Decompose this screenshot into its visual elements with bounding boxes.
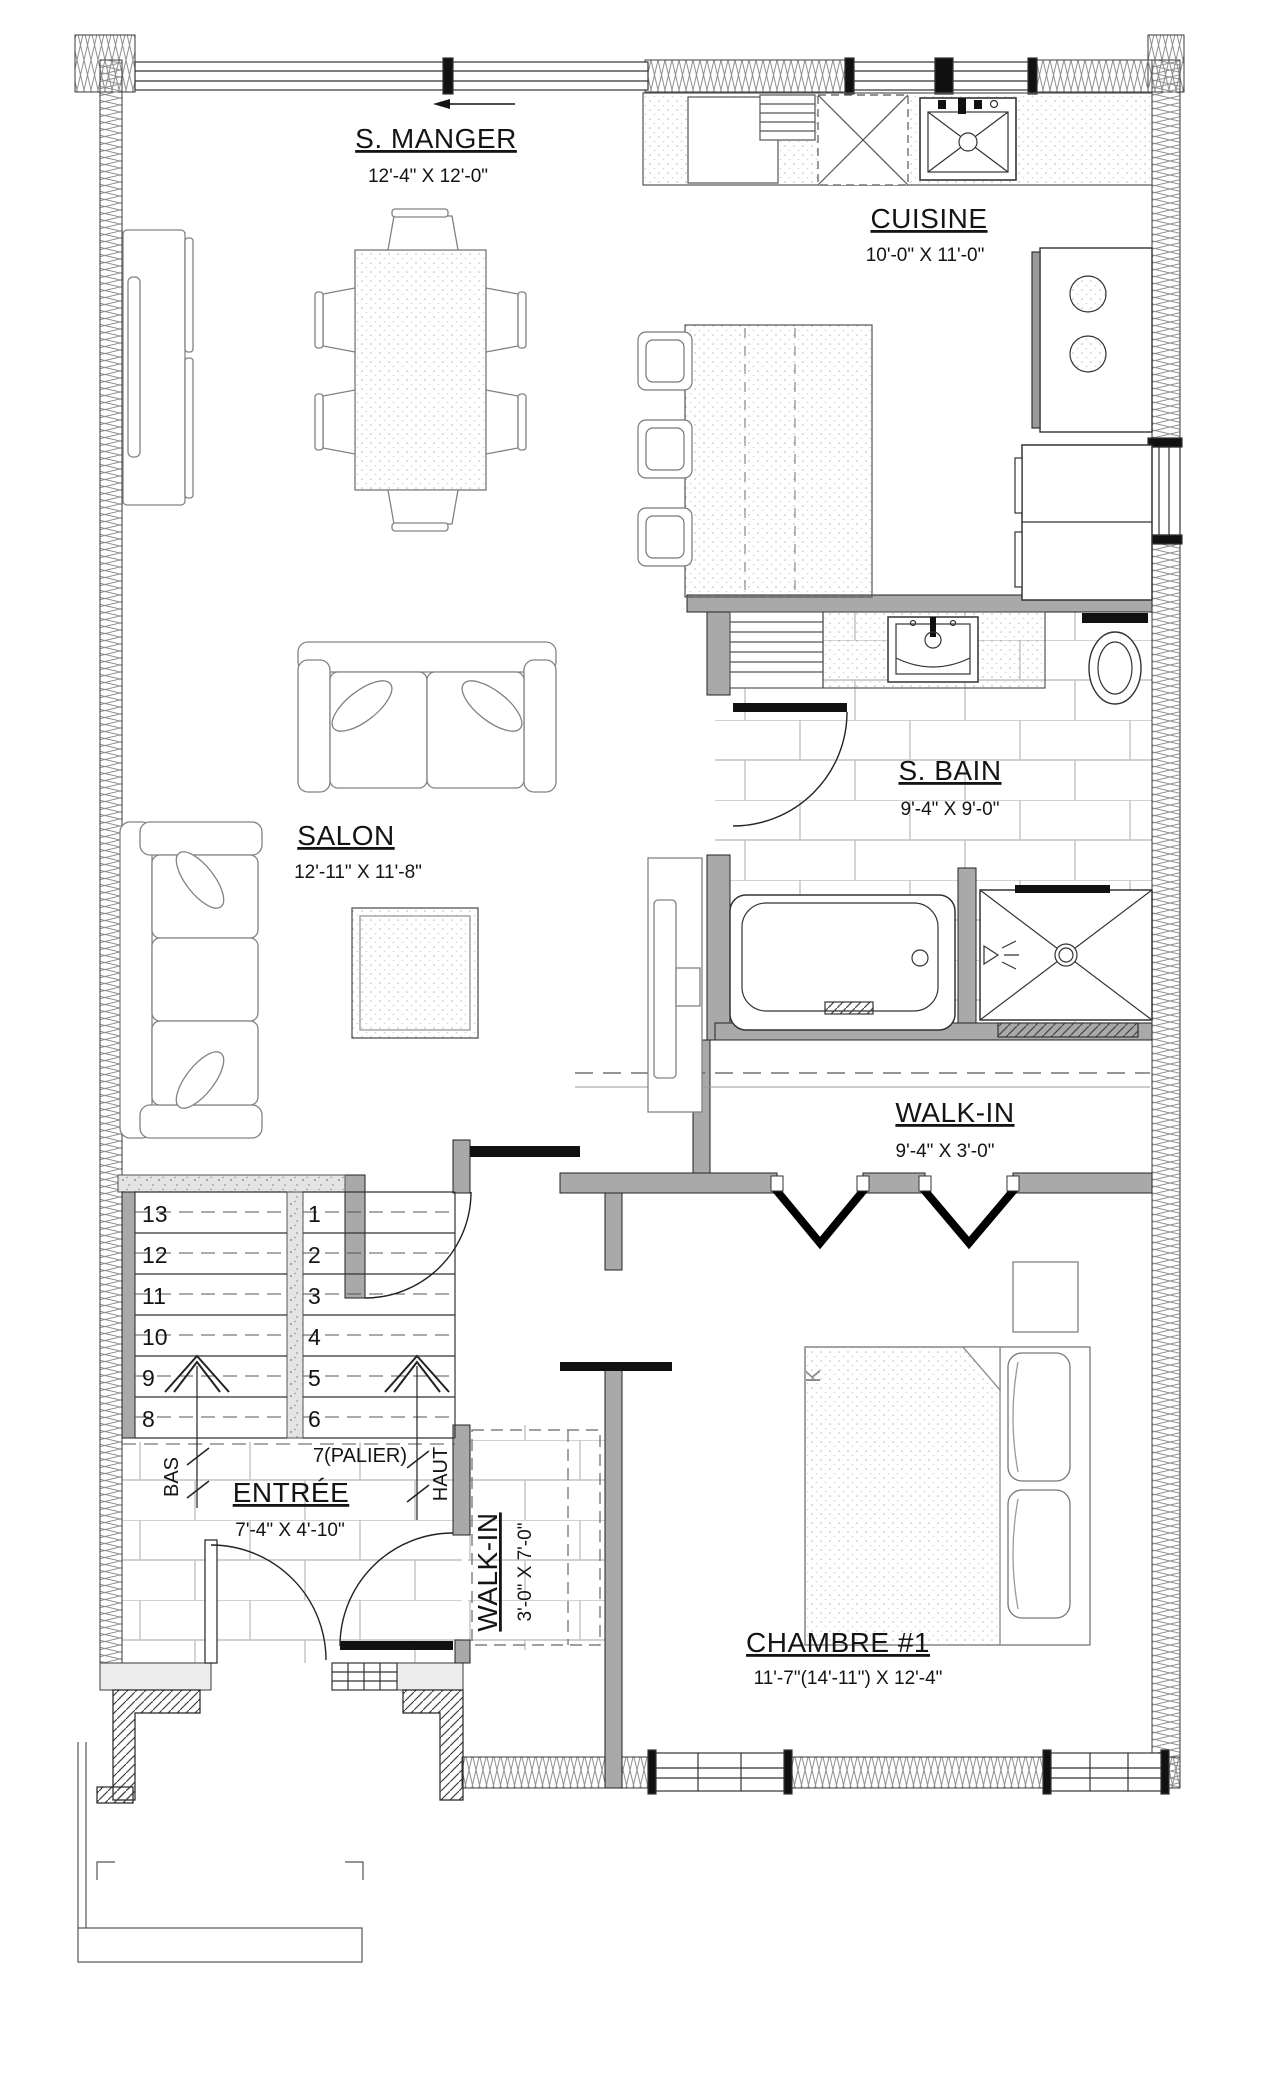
kitchen-sink bbox=[920, 98, 1016, 180]
stair-step-number: 11 bbox=[142, 1283, 166, 1309]
tub-shower-divider-wall bbox=[958, 868, 976, 1040]
window bbox=[852, 62, 935, 90]
kitchen-label: CUISINE bbox=[870, 203, 987, 234]
bath-west-wall-lower bbox=[707, 855, 730, 1040]
west-exterior-wall bbox=[100, 60, 122, 1663]
dining-label: S. MANGER bbox=[355, 123, 517, 154]
direction-arrow bbox=[433, 99, 515, 109]
island-stools bbox=[638, 332, 692, 566]
stair-door-stub bbox=[345, 1175, 365, 1298]
coffee-table bbox=[352, 908, 478, 1038]
stairs-down-label: BAS bbox=[161, 1457, 183, 1497]
entry-closet-dims: 3'-0" X 7'-0" bbox=[515, 1523, 536, 1622]
walkin-south-pier bbox=[863, 1173, 925, 1193]
bedroom-label: CHAMBRE #1 bbox=[746, 1627, 930, 1658]
dining-table bbox=[355, 250, 486, 490]
stairs-up-label: HAUT bbox=[430, 1447, 452, 1501]
dining-chair bbox=[486, 288, 518, 352]
dining-chair bbox=[323, 288, 355, 352]
window-mullion bbox=[443, 58, 453, 94]
bathroom-label: S. BAIN bbox=[898, 755, 1001, 786]
sofa-arm bbox=[140, 1105, 262, 1138]
tv-console-shelf bbox=[676, 968, 700, 1006]
arrow-head bbox=[433, 99, 450, 109]
living-furniture bbox=[120, 642, 702, 1138]
window-mullion bbox=[1148, 438, 1182, 447]
floor-plan-drawing: 13 12 11 10 9 8 1 2 3 4 5 6 bbox=[0, 0, 1275, 2100]
window-south bbox=[1050, 1753, 1165, 1791]
nightstand bbox=[1013, 1262, 1078, 1332]
dining-dims: 12'-4" X 12'-0" bbox=[368, 166, 488, 187]
living-dims: 12'-11" X 11'-8" bbox=[294, 862, 422, 883]
window-east bbox=[1150, 447, 1180, 535]
stair-step-number: 6 bbox=[308, 1406, 321, 1432]
closet-west-wall bbox=[453, 1425, 470, 1535]
shower-threshold bbox=[998, 1023, 1138, 1037]
stair-step-number: 12 bbox=[142, 1242, 168, 1268]
bath-linen-cabinet bbox=[730, 612, 823, 688]
dining-chair bbox=[388, 216, 458, 250]
front-door-leaf bbox=[205, 1540, 217, 1663]
stair-step-number: 9 bbox=[142, 1365, 155, 1391]
kitchen-fixtures bbox=[638, 93, 1152, 600]
porch-column-mark bbox=[345, 1862, 363, 1880]
vanity-sink bbox=[888, 617, 978, 682]
hall-door-leaf bbox=[470, 1146, 580, 1157]
bed bbox=[805, 1347, 1090, 1645]
living-label: SALON bbox=[297, 820, 394, 851]
shower bbox=[980, 885, 1152, 1037]
loveseat-arm bbox=[298, 660, 330, 792]
pillow bbox=[1008, 1490, 1070, 1618]
window bbox=[135, 62, 445, 90]
refrigerator bbox=[1015, 445, 1152, 600]
buffet-handle bbox=[128, 277, 140, 457]
walkin-label: WALK-IN bbox=[895, 1097, 1014, 1128]
hall-wall-stub bbox=[453, 1140, 470, 1193]
window-mullion bbox=[784, 1750, 792, 1794]
bedroom-door-leaf bbox=[560, 1362, 672, 1371]
window bbox=[952, 62, 1030, 90]
loveseat-arm bbox=[524, 660, 556, 792]
tv-console bbox=[648, 858, 702, 1112]
east-exterior-wall bbox=[1152, 60, 1180, 1788]
bedroom-dims: 11'-7"(14'-11") X 12'-4" bbox=[754, 1668, 943, 1689]
stair-step-number: 3 bbox=[308, 1283, 321, 1309]
window bbox=[450, 62, 648, 90]
bed-size-label: K bbox=[803, 1369, 825, 1383]
bedroom-furniture bbox=[805, 1262, 1090, 1645]
closet-hinge-block bbox=[455, 1640, 470, 1663]
walkin-south-wall bbox=[560, 1173, 777, 1193]
pillow bbox=[1008, 1353, 1070, 1481]
stair-step-number: 10 bbox=[142, 1324, 168, 1350]
entry-closet-label: WALK-IN bbox=[472, 1512, 503, 1631]
porch-wall-right bbox=[403, 1690, 463, 1800]
door-jamb bbox=[857, 1176, 869, 1191]
dining-chair bbox=[388, 490, 458, 524]
stair-step-number: 8 bbox=[142, 1406, 155, 1432]
stove bbox=[1032, 248, 1152, 432]
stair-north-wall bbox=[118, 1175, 345, 1192]
stair-step-number: 1 bbox=[308, 1201, 321, 1227]
stair-left-wall-face bbox=[122, 1192, 135, 1438]
bathtub bbox=[730, 895, 955, 1030]
door-jamb bbox=[771, 1176, 783, 1191]
door-jamb bbox=[1007, 1176, 1019, 1191]
landing-label: 7(PALIER) bbox=[313, 1445, 407, 1467]
floor-plan-page: 13 12 11 10 9 8 1 2 3 4 5 6 bbox=[0, 0, 1275, 2100]
porch-column-mark bbox=[97, 1862, 115, 1880]
kitchen-island bbox=[685, 325, 872, 597]
door-leaf bbox=[733, 703, 847, 712]
sofa-back bbox=[120, 822, 152, 1138]
stair-step-number: 13 bbox=[142, 1201, 168, 1227]
bifold-door bbox=[777, 1191, 863, 1243]
closet-door-leaf bbox=[340, 1641, 453, 1650]
porch-edge bbox=[78, 1742, 86, 1928]
bedroom-west-wall-lower bbox=[605, 1370, 622, 1788]
stair-step-number: 2 bbox=[308, 1242, 321, 1268]
stair-step-number: 5 bbox=[308, 1365, 321, 1391]
stair-center-stringer bbox=[287, 1192, 303, 1438]
tub-faucet bbox=[825, 1002, 873, 1014]
window-south bbox=[655, 1753, 785, 1791]
walkin-south-wall bbox=[1013, 1173, 1152, 1193]
sofa bbox=[120, 822, 262, 1138]
window-mullion bbox=[845, 58, 854, 94]
tv bbox=[654, 900, 676, 1078]
walkin-dims: 9'-4" X 3'-0" bbox=[896, 1141, 995, 1162]
window-mullion bbox=[1161, 1750, 1169, 1794]
bathroom-dims: 9'-4" X 9'-0" bbox=[901, 799, 1000, 820]
bedroom-west-wall-upper bbox=[605, 1193, 622, 1270]
bifold-door bbox=[925, 1191, 1013, 1243]
window-mullion bbox=[1043, 1750, 1051, 1794]
dining-chair bbox=[323, 390, 355, 454]
porch-wall-left-foot bbox=[97, 1787, 133, 1803]
entry-south-wall bbox=[100, 1663, 211, 1690]
north-wall-segment bbox=[645, 60, 852, 92]
sofa-cushion bbox=[152, 938, 258, 1021]
kitchen-appliance bbox=[760, 95, 815, 140]
porch-walls bbox=[97, 1690, 463, 1803]
stair-step-number: 4 bbox=[308, 1324, 321, 1350]
porch-step bbox=[78, 1928, 362, 1962]
north-wall-segment bbox=[1030, 60, 1152, 92]
entry-dims: 7'-4" X 4'-10" bbox=[235, 1520, 344, 1541]
kitchen-dims: 10'-0" X 11'-0" bbox=[866, 245, 985, 266]
bath-west-wall-upper bbox=[707, 612, 730, 695]
window-mullion bbox=[935, 58, 953, 94]
window-mullion bbox=[648, 1750, 656, 1794]
dining-furniture bbox=[123, 209, 526, 531]
bed-blanket bbox=[805, 1347, 1000, 1645]
loveseat bbox=[298, 642, 556, 792]
entry-south-wall bbox=[397, 1663, 463, 1690]
entry-label: ENTRÉE bbox=[233, 1477, 350, 1508]
door-jamb bbox=[919, 1176, 931, 1191]
porch-wall-left bbox=[113, 1690, 200, 1800]
shower-door-bar bbox=[1015, 885, 1110, 893]
dining-chair bbox=[486, 390, 518, 454]
sofa-arm bbox=[140, 822, 262, 855]
window-mullion bbox=[1028, 58, 1037, 94]
window-mullion bbox=[1148, 535, 1182, 544]
